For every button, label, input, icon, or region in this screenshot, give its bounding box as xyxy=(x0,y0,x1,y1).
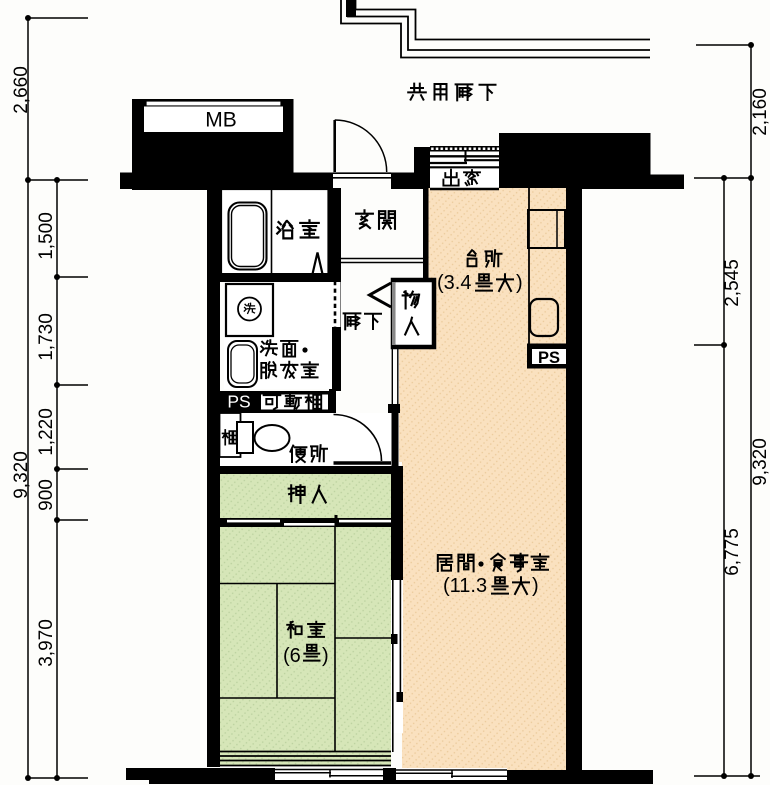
svg-text:2,660: 2,660 xyxy=(11,66,32,114)
svg-text:9,320: 9,320 xyxy=(750,438,770,486)
svg-text:2,545: 2,545 xyxy=(722,259,743,307)
svg-text:1,500: 1,500 xyxy=(36,212,57,260)
svg-text:9,320: 9,320 xyxy=(11,451,32,499)
svg-text:1,730: 1,730 xyxy=(36,313,57,361)
svg-text:1,220: 1,220 xyxy=(36,408,57,456)
svg-text:): ) xyxy=(516,272,523,294)
svg-text:(11.3: (11.3 xyxy=(443,575,487,597)
svg-text:): ) xyxy=(532,575,539,597)
svg-text:3,970: 3,970 xyxy=(36,619,57,667)
svg-text:900: 900 xyxy=(36,479,57,511)
svg-text:): ) xyxy=(322,645,329,667)
svg-text:PS: PS xyxy=(538,349,560,367)
svg-text:MB: MB xyxy=(205,109,237,132)
svg-text:PS: PS xyxy=(227,392,250,412)
svg-text:2,160: 2,160 xyxy=(750,88,770,136)
svg-text:(3.4: (3.4 xyxy=(437,272,471,294)
svg-text:6,775: 6,775 xyxy=(722,528,743,576)
svg-text:(6: (6 xyxy=(283,645,301,667)
